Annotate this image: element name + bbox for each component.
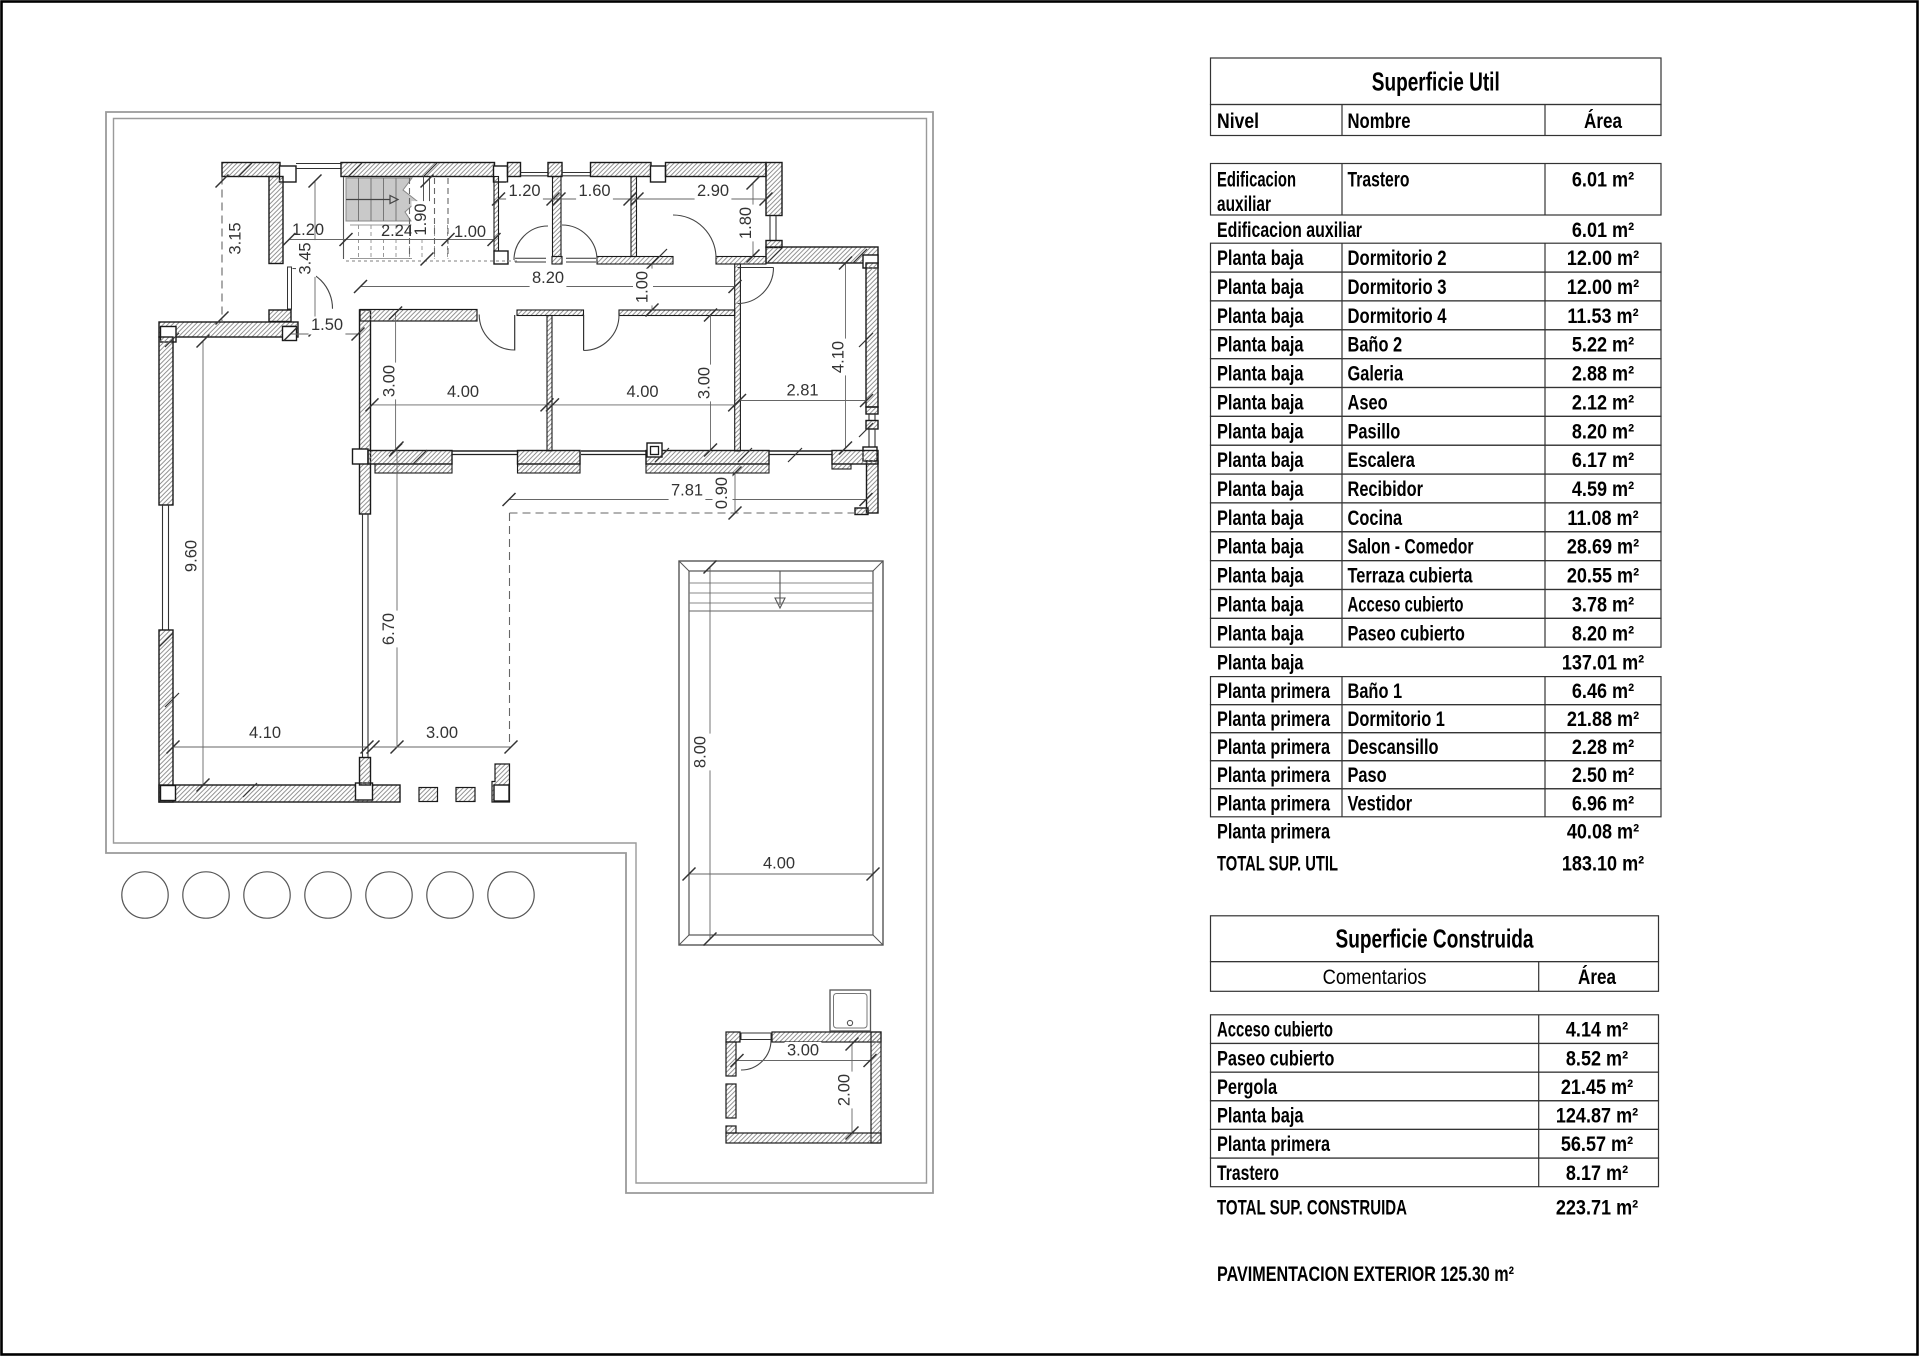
svg-text:Área: Área <box>1578 966 1616 989</box>
svg-text:Planta baja: Planta baja <box>1217 593 1304 616</box>
svg-text:Recibidor: Recibidor <box>1348 478 1424 501</box>
svg-text:Comentarios: Comentarios <box>1323 966 1427 989</box>
svg-text:Paso: Paso <box>1348 764 1387 787</box>
svg-text:Paseo cubierto: Paseo cubierto <box>1217 1047 1334 1070</box>
svg-text:PAVIMENTACION EXTERIOR 125.30: PAVIMENTACION EXTERIOR 125.30 m² <box>1217 1263 1514 1286</box>
svg-text:3.78 m²: 3.78 m² <box>1572 593 1634 616</box>
svg-text:Descansillo: Descansillo <box>1348 736 1439 759</box>
svg-text:2.88 m²: 2.88 m² <box>1572 363 1634 386</box>
svg-text:Pergola: Pergola <box>1217 1076 1277 1099</box>
svg-text:2.90: 2.90 <box>697 182 729 200</box>
svg-text:1.00: 1.00 <box>633 271 651 303</box>
svg-text:TOTAL SUP. CONSTRUIDA: TOTAL SUP. CONSTRUIDA <box>1217 1197 1407 1220</box>
svg-text:11.08 m²: 11.08 m² <box>1567 507 1638 530</box>
svg-text:4.10: 4.10 <box>249 724 281 742</box>
svg-text:Acceso cubierto: Acceso cubierto <box>1348 593 1464 616</box>
svg-text:9.60: 9.60 <box>182 540 200 572</box>
svg-text:Planta baja: Planta baja <box>1217 478 1304 501</box>
svg-text:1.60: 1.60 <box>578 182 610 200</box>
svg-text:21.45 m²: 21.45 m² <box>1561 1076 1633 1099</box>
svg-text:Escalera: Escalera <box>1348 449 1416 472</box>
svg-text:6.17 m²: 6.17 m² <box>1572 449 1634 472</box>
svg-text:2.24: 2.24 <box>381 222 413 240</box>
svg-text:56.57 m²: 56.57 m² <box>1561 1133 1633 1156</box>
svg-text:Planta primera: Planta primera <box>1217 764 1330 787</box>
svg-text:3.15: 3.15 <box>226 222 244 254</box>
svg-text:TOTAL SUP. UTIL: TOTAL SUP. UTIL <box>1217 853 1338 876</box>
svg-text:Planta baja: Planta baja <box>1217 449 1304 472</box>
svg-text:Planta baja: Planta baja <box>1217 652 1304 675</box>
svg-text:Vestidor: Vestidor <box>1348 792 1413 815</box>
svg-text:1.90: 1.90 <box>412 203 430 235</box>
svg-text:Planta baja: Planta baja <box>1217 334 1304 357</box>
svg-text:2.50 m²: 2.50 m² <box>1572 764 1634 787</box>
svg-text:40.08 m²: 40.08 m² <box>1567 821 1639 844</box>
svg-text:3.00: 3.00 <box>787 1041 819 1059</box>
svg-text:Planta baja: Planta baja <box>1217 247 1304 270</box>
svg-text:Acceso cubierto: Acceso cubierto <box>1217 1019 1333 1042</box>
svg-text:8.17 m²: 8.17 m² <box>1566 1162 1628 1185</box>
svg-text:1.50: 1.50 <box>311 316 343 334</box>
svg-text:0.90: 0.90 <box>713 477 731 509</box>
svg-text:Planta baja: Planta baja <box>1217 622 1304 645</box>
svg-text:1.80: 1.80 <box>737 207 755 239</box>
svg-text:Pasillo: Pasillo <box>1348 420 1401 443</box>
svg-text:Baño 2: Baño 2 <box>1348 334 1403 357</box>
svg-text:Trastero: Trastero <box>1348 169 1410 192</box>
svg-text:28.69 m²: 28.69 m² <box>1567 536 1639 559</box>
svg-text:223.71 m²: 223.71 m² <box>1556 1197 1638 1220</box>
svg-text:Planta baja: Planta baja <box>1217 363 1304 386</box>
svg-text:5.22 m²: 5.22 m² <box>1572 334 1634 357</box>
svg-text:20.55 m²: 20.55 m² <box>1567 565 1639 588</box>
svg-text:12.00 m²: 12.00 m² <box>1567 276 1639 299</box>
svg-text:6.01 m²: 6.01 m² <box>1572 169 1634 192</box>
svg-text:1.20: 1.20 <box>292 221 324 239</box>
svg-text:Edificacion: Edificacion <box>1217 169 1296 192</box>
svg-text:Planta baja: Planta baja <box>1217 536 1304 559</box>
svg-text:4.14 m²: 4.14 m² <box>1566 1019 1628 1042</box>
svg-text:6.46 m²: 6.46 m² <box>1572 680 1634 703</box>
svg-text:Dormitorio 4: Dormitorio 4 <box>1348 305 1447 328</box>
svg-text:Planta baja: Planta baja <box>1217 391 1304 414</box>
svg-text:4.00: 4.00 <box>447 383 479 401</box>
svg-text:124.87 m²: 124.87 m² <box>1556 1105 1638 1128</box>
svg-text:Planta primera: Planta primera <box>1217 680 1330 703</box>
svg-text:8.20 m²: 8.20 m² <box>1572 420 1634 443</box>
svg-text:8.20: 8.20 <box>532 269 564 287</box>
svg-text:Planta primera: Planta primera <box>1217 1133 1330 1156</box>
svg-text:Galeria: Galeria <box>1348 363 1404 386</box>
svg-text:4.59 m²: 4.59 m² <box>1572 478 1634 501</box>
svg-text:Dormitorio 1: Dormitorio 1 <box>1348 708 1446 731</box>
svg-text:2.12 m²: 2.12 m² <box>1572 391 1634 414</box>
svg-text:6.96 m²: 6.96 m² <box>1572 792 1634 815</box>
svg-text:auxiliar: auxiliar <box>1217 193 1271 216</box>
svg-text:8.00: 8.00 <box>691 736 709 768</box>
svg-text:Edificacion auxiliar: Edificacion auxiliar <box>1217 219 1362 242</box>
svg-text:Cocina: Cocina <box>1348 507 1403 530</box>
svg-text:Salon - Comedor: Salon - Comedor <box>1348 536 1474 559</box>
svg-text:Planta baja: Planta baja <box>1217 276 1304 299</box>
svg-text:Planta primera: Planta primera <box>1217 821 1330 844</box>
svg-text:Superficie Util: Superficie Util <box>1372 67 1500 97</box>
svg-text:8.20 m²: 8.20 m² <box>1572 622 1634 645</box>
svg-text:4.10: 4.10 <box>829 341 847 373</box>
svg-text:Planta baja: Planta baja <box>1217 565 1304 588</box>
svg-text:Planta primera: Planta primera <box>1217 792 1330 815</box>
svg-text:Planta primera: Planta primera <box>1217 736 1330 759</box>
svg-text:Área: Área <box>1584 110 1622 133</box>
svg-text:Planta baja: Planta baja <box>1217 420 1304 443</box>
svg-text:4.00: 4.00 <box>763 854 795 872</box>
svg-text:6.01 m²: 6.01 m² <box>1572 219 1634 242</box>
svg-text:6.70: 6.70 <box>380 613 398 645</box>
svg-text:Trastero: Trastero <box>1217 1162 1279 1185</box>
svg-text:Terraza cubierta: Terraza cubierta <box>1348 565 1473 588</box>
svg-text:3.45: 3.45 <box>296 242 314 274</box>
svg-text:2.00: 2.00 <box>835 1074 853 1106</box>
svg-text:183.10 m²: 183.10 m² <box>1562 853 1644 876</box>
svg-text:Baño 1: Baño 1 <box>1348 680 1403 703</box>
svg-text:Planta baja: Planta baja <box>1217 507 1304 530</box>
svg-text:1.20: 1.20 <box>508 182 540 200</box>
svg-text:1.00: 1.00 <box>454 223 486 241</box>
svg-text:3.00: 3.00 <box>695 367 713 399</box>
svg-text:137.01 m²: 137.01 m² <box>1562 652 1644 675</box>
svg-text:Planta primera: Planta primera <box>1217 708 1330 731</box>
svg-text:Nombre: Nombre <box>1348 110 1411 133</box>
svg-text:Nivel: Nivel <box>1217 110 1259 133</box>
svg-text:21.88 m²: 21.88 m² <box>1567 708 1639 731</box>
svg-text:3.00: 3.00 <box>380 365 398 397</box>
svg-text:8.52 m²: 8.52 m² <box>1566 1047 1628 1070</box>
svg-text:Planta baja: Planta baja <box>1217 305 1304 328</box>
svg-text:Dormitorio 3: Dormitorio 3 <box>1348 276 1447 299</box>
svg-text:11.53 m²: 11.53 m² <box>1567 305 1638 328</box>
svg-text:7.81: 7.81 <box>671 481 703 499</box>
svg-text:4.00: 4.00 <box>626 383 658 401</box>
svg-text:2.81: 2.81 <box>786 381 818 399</box>
svg-text:3.00: 3.00 <box>426 724 458 742</box>
svg-text:Aseo: Aseo <box>1348 391 1388 414</box>
svg-text:2.28 m²: 2.28 m² <box>1572 736 1634 759</box>
svg-text:Dormitorio 2: Dormitorio 2 <box>1348 247 1447 270</box>
svg-text:Paseo cubierto: Paseo cubierto <box>1348 622 1465 645</box>
svg-text:Superficie Construida: Superficie Construida <box>1336 924 1534 954</box>
svg-text:Planta baja: Planta baja <box>1217 1105 1304 1128</box>
svg-text:12.00 m²: 12.00 m² <box>1567 247 1639 270</box>
